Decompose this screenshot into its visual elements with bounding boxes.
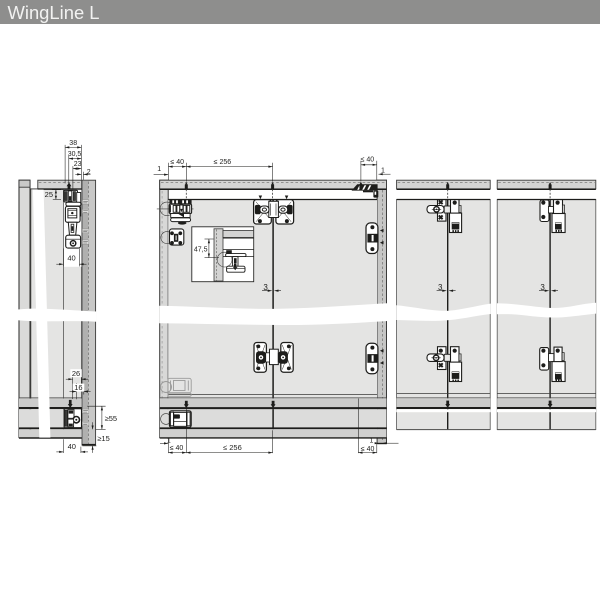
svg-text:16: 16: [74, 383, 82, 392]
svg-text:23: 23: [74, 161, 82, 168]
svg-text:≥55: ≥55: [105, 414, 117, 423]
svg-text:≤ 40: ≤ 40: [170, 159, 184, 166]
svg-text:1: 1: [370, 438, 374, 445]
svg-text:≤ 256: ≤ 256: [223, 443, 242, 452]
svg-text:1: 1: [157, 166, 161, 173]
svg-text:WingLine L: WingLine L: [8, 2, 100, 23]
svg-text:25: 25: [45, 190, 53, 199]
svg-text:40: 40: [68, 442, 76, 451]
svg-text:≤ 40: ≤ 40: [170, 445, 184, 452]
svg-text:40: 40: [67, 253, 75, 262]
svg-text:1: 1: [381, 167, 385, 174]
svg-text:≤ 256: ≤ 256: [214, 159, 232, 166]
svg-text:≥15: ≥15: [97, 434, 109, 443]
svg-text:≤ 40: ≤ 40: [361, 157, 375, 164]
svg-text:≤ 40: ≤ 40: [361, 446, 375, 453]
svg-text:1: 1: [167, 437, 171, 444]
svg-text:30,5: 30,5: [68, 151, 82, 158]
svg-text:26: 26: [72, 369, 80, 378]
svg-text:38: 38: [69, 140, 77, 147]
svg-text:47,5: 47,5: [194, 247, 208, 254]
